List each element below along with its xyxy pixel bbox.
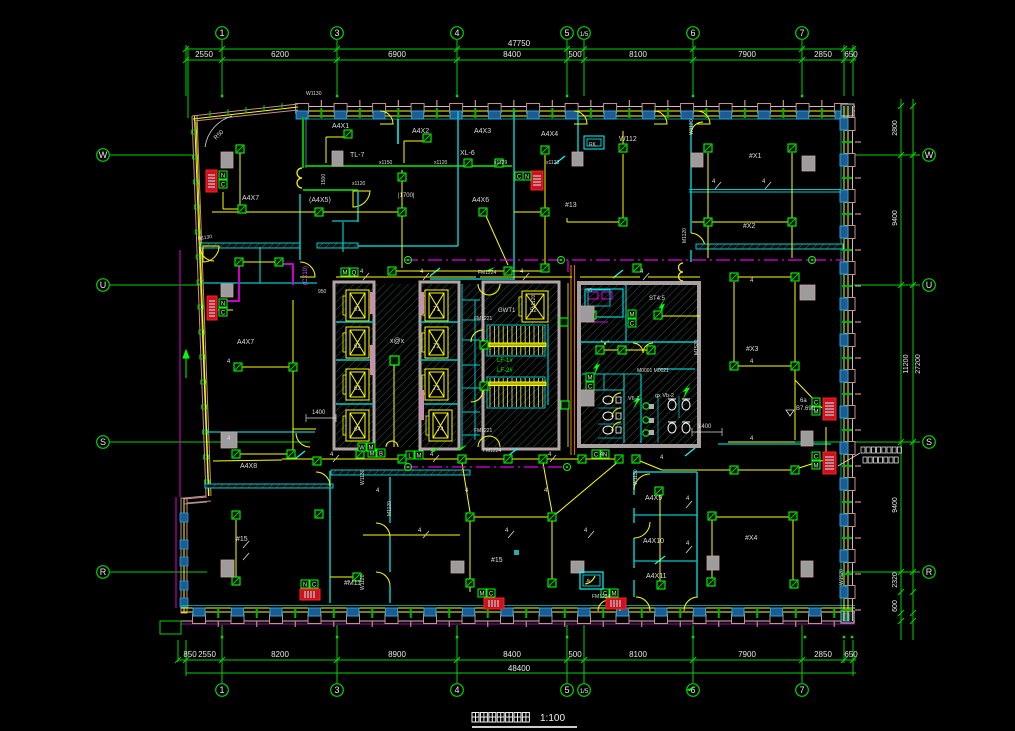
svg-text:W: W [99,150,108,160]
svg-text:W1130: W1130 [360,469,366,485]
svg-text:W: W [359,446,365,452]
svg-text:#15: #15 [236,536,248,543]
svg-text:4: 4 [454,28,459,38]
svg-text:|1700|: |1700| [398,193,415,199]
svg-text:9400: 9400 [892,497,899,513]
svg-text:11200: 11200 [903,354,910,373]
svg-text:1/5: 1/5 [580,32,589,38]
svg-text:M: M [417,454,422,460]
svg-text:A4X1: A4X1 [332,123,349,130]
svg-text:LF-1#: LF-1# [497,358,513,364]
svg-text:B7.690: B7.690 [796,406,816,412]
svg-text:B: B [379,452,383,458]
svg-text:8900: 8900 [388,650,406,659]
svg-text:C: C [489,592,494,598]
svg-text:9400: 9400 [892,210,899,226]
svg-text:1:100: 1:100 [540,713,565,724]
svg-text:62: 62 [354,344,361,350]
svg-text:#X2: #X2 [743,223,756,230]
svg-text:A4X10: A4X10 [643,538,664,545]
svg-text:A4X2: A4X2 [412,128,429,135]
svg-text:47750: 47750 [508,39,531,48]
svg-text:R: R [926,567,933,577]
svg-text:600: 600 [892,600,899,612]
svg-text:x1150: x1150 [379,160,392,166]
svg-text:500: 500 [568,50,582,59]
svg-text:FM1224: FM1224 [592,594,611,600]
svg-text:#15: #15 [491,557,503,564]
svg-text:A4X9: A4X9 [645,495,662,502]
svg-text:A4X7: A4X7 [237,339,254,346]
svg-text:S: S [926,437,932,447]
svg-text:M1520: M1520 [694,339,700,355]
svg-text:C: C [221,311,226,317]
svg-text:8100: 8100 [629,650,647,659]
svg-text:1500: 1500 [321,174,327,185]
svg-text:R: R [100,567,107,577]
svg-text:x1120: x1120 [531,295,537,308]
svg-text:XL-6: XL-6 [460,150,475,157]
svg-text:RK: RK [589,142,597,148]
svg-text:M: M [814,464,819,470]
svg-text:S: S [100,437,106,447]
svg-text:C: C [594,453,599,459]
svg-text:6a: 6a [800,398,807,404]
svg-text:3: 3 [334,28,339,38]
svg-text:#X3: #X3 [746,346,759,353]
svg-text:GWT1: GWT1 [498,308,516,314]
svg-text:6: 6 [690,28,695,38]
svg-text:M: M [588,376,593,382]
svg-text:#M11: #M11 [344,580,361,587]
svg-text:Q: Q [352,271,357,277]
svg-text:(CX10): (CX10) [303,266,309,285]
svg-text:M: M [630,313,635,319]
svg-text:7900: 7900 [738,50,756,59]
svg-text:M: M [370,452,375,458]
svg-text:A4X6: A4X6 [472,197,489,204]
svg-text:8100: 8100 [629,50,647,59]
svg-text:Jk: Jk [586,578,591,583]
svg-text:FM1224: FM1224 [483,448,502,454]
svg-text:71: 71 [433,307,440,313]
svg-text:61: 61 [354,307,361,313]
svg-text:V6-1: V6-1 [628,396,640,402]
svg-text:8200: 8200 [271,650,289,659]
svg-text:M0001 M0021: M0001 M0021 [637,368,669,374]
svg-text:TL-7: TL-7 [350,152,365,159]
svg-text:72: 72 [433,344,440,350]
svg-text:W1130: W1130 [306,91,322,97]
svg-text:U: U [100,280,107,290]
svg-text:FM1224: FM1224 [478,270,497,276]
svg-text:2800: 2800 [892,120,899,136]
svg-text:C: C [221,183,226,189]
svg-text:M: M [480,592,485,598]
svg-text:8400: 8400 [503,50,521,59]
svg-text:N: N [303,583,307,589]
svg-text:74: 74 [437,427,444,433]
svg-text:C: C [517,175,522,181]
svg-text:73: 73 [433,386,440,392]
svg-text:2320: 2320 [892,572,899,588]
svg-text:x@x: x@x [390,338,405,345]
svg-text:W112: W112 [619,136,637,143]
svg-text:W1120: W1120 [360,574,366,590]
svg-text:x1129: x1129 [494,160,507,166]
svg-text:500: 500 [568,650,582,659]
svg-text:M: M [612,592,617,598]
svg-text:LF-2#: LF-2# [497,368,513,374]
svg-text:3: 3 [334,685,339,695]
svg-text:W: W [925,150,934,160]
svg-text:M: M [369,446,374,452]
svg-text:ST4:5: ST4:5 [649,296,666,302]
svg-text:N: N [221,302,225,308]
svg-text:U: U [926,280,933,290]
svg-text:A4X8: A4X8 [240,463,257,470]
svg-text:1: 1 [219,28,224,38]
svg-text:27200: 27200 [915,354,922,374]
svg-text:M1120: M1120 [682,228,688,243]
svg-text:N: N [603,453,607,459]
svg-text:64: 64 [354,427,361,433]
svg-text:6200: 6200 [271,50,289,59]
svg-text:8400: 8400 [503,650,521,659]
svg-text:FM1221: FM1221 [474,316,493,322]
svg-text:M: M [343,271,348,277]
svg-text:5: 5 [564,685,569,695]
svg-text:x1120: x1120 [434,160,447,166]
svg-text:7: 7 [799,685,804,695]
svg-text:C: C [630,322,635,328]
svg-text:2850: 2850 [814,650,832,659]
svg-text:850: 850 [183,650,197,659]
svg-text:x1123: x1123 [546,160,559,166]
svg-text:A4X11: A4X11 [646,573,667,580]
svg-text:2850: 2850 [814,50,832,59]
svg-text:7: 7 [799,28,804,38]
svg-text:7900: 7900 [738,650,756,659]
svg-text:#6: #6 [586,288,592,294]
svg-text:2550: 2550 [195,50,213,59]
svg-text:C: C [312,583,317,589]
svg-text:6900: 6900 [388,50,406,59]
svg-text:A4X4: A4X4 [541,131,558,138]
svg-text:C: C [814,455,819,461]
svg-text:M1120: M1120 [387,501,393,516]
svg-text:A4X3: A4X3 [474,128,491,135]
svg-text:A4X7: A4X7 [242,195,259,202]
svg-text:gx Vb-2: gx Vb-2 [655,393,674,399]
svg-text:FM1221: FM1221 [474,428,493,434]
svg-text:x1120: x1120 [352,181,365,187]
svg-text:48400: 48400 [508,664,531,673]
svg-text:1400: 1400 [312,410,326,416]
svg-text:W1120: W1120 [689,119,695,135]
svg-text:N: N [221,174,225,180]
svg-text:950: 950 [318,289,327,295]
svg-text:#13: #13 [565,202,577,209]
svg-text:W1520: W1520 [839,569,845,585]
svg-text:#X1: #X1 [749,153,762,160]
svg-text:1: 1 [219,685,224,695]
svg-text:(A4X5): (A4X5) [309,197,331,204]
svg-text:N: N [525,175,529,181]
svg-text:W1130: W1130 [633,469,639,485]
svg-text:1400: 1400 [698,424,712,430]
svg-text:4: 4 [454,685,459,695]
svg-text:2550: 2550 [198,650,216,659]
svg-text:63: 63 [354,386,361,392]
svg-text:#X4: #X4 [745,535,758,542]
svg-text:5: 5 [564,28,569,38]
svg-text:1/5: 1/5 [580,689,589,695]
